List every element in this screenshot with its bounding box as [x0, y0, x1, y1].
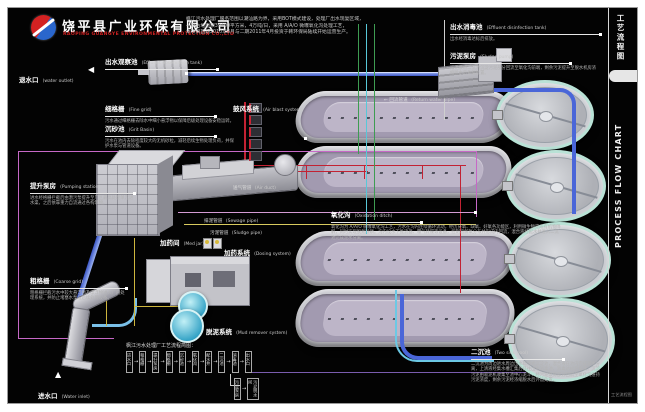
dewatering-machine-2 — [213, 271, 235, 287]
dosing-tank-icon-2 — [213, 238, 222, 249]
label-coarse-grid: 粗格栅 (Coarse grid) 粗格栅拦截污水中较大悬浮物及漂浮物进入厂内处… — [30, 277, 126, 302]
air-duct-name-en: (Air duct) — [255, 186, 276, 191]
sludge-thickener-2 — [170, 309, 204, 343]
diagram-canvas: 饶平县广业环保有限公司 RAOPING GUANGYE ENVIRONMENTA… — [7, 7, 638, 404]
grit-basin-desc: 污水在池内去除密度较大的无机砂粒，减轻后续生物处理负荷，并保护水泵与管道设备。 — [105, 139, 237, 150]
oxidation-ditch-desc: 氧化沟为 A/A/O 微曝氧化沟工艺，污水在沟内连续循环流动，经历厌氧、缺氧、好… — [331, 225, 561, 242]
riser-line-green-2 — [374, 24, 375, 220]
plant-description-line: 本项目首期2010年3月与二期2011年4月投资于韩环保局陆续开始运营生产。 — [186, 30, 461, 37]
label-pumping-station: 提升泵房 (Pumping station) 进水经格栅拦截后由潜污泵提升至厂区… — [30, 182, 134, 207]
clarifier-hub — [554, 256, 568, 267]
coarse-grid-name: 粗格栅 — [30, 277, 50, 285]
return-line-h — [18, 151, 476, 152]
observation-tank-name: 出水观察池 — [105, 58, 138, 66]
inlet-arrow-icon: ▲ — [55, 370, 61, 379]
mini-flow-step: 配水井 — [205, 351, 212, 373]
sidebar-footer: 工艺流程图 — [611, 392, 632, 398]
plant-description: 枫江污水处理厂服务范围以潮汕路为界，采用BOT模式建设，处理厂出水现复区域， 一… — [186, 17, 461, 37]
med-jar-name-en: (Med jar) — [184, 242, 204, 247]
disinfection-tank-name: 出水消毒池 — [450, 23, 483, 31]
dosing-system-name: 加药系统 — [224, 249, 250, 257]
secondary-tank-name-en: (Two sink pool) — [495, 351, 528, 356]
mini-flow-title: 枫江污水处理厂工艺流程简图： — [126, 342, 406, 349]
grit-basin-name: 沉砂池 — [105, 125, 125, 133]
label-water-outlet: 退水口 (water outlet) — [19, 67, 74, 86]
water-outlet-name-en: (water outlet) — [43, 79, 74, 84]
clarifier-hub — [556, 336, 570, 347]
effluent-pipe-loop — [454, 88, 576, 164]
clarifier-drive — [504, 334, 515, 344]
clarifier-drive — [504, 254, 515, 264]
mini-flow-arrow-icon: → — [134, 359, 138, 365]
oxidation-ditch-name: 氧化沟 — [331, 211, 351, 219]
dosing-tank-icon-1 — [203, 238, 212, 249]
blower-unit-4 — [249, 139, 262, 149]
junction-node — [304, 137, 307, 140]
mini-flow-arrow-icon: → — [174, 359, 178, 365]
sludge-pump-name-en: (Sludge pump) — [480, 55, 513, 60]
air-drop-3 — [422, 165, 423, 179]
sidebar-tab-shape — [609, 70, 637, 82]
inlet-elbow — [60, 296, 130, 376]
sludge-pump-desc: 污泥泵将二沉池沉淀污泥部分回流至氧化沟前端，剩余污泥提升至脱水机房浓缩脱水后外运… — [450, 66, 600, 77]
ditch-aerators — [328, 172, 479, 174]
mini-flow-step: 氧化沟 — [192, 351, 199, 373]
effluent-main-pipe — [186, 72, 444, 76]
return-line-v-right — [476, 151, 477, 217]
pumping-station-name-en: (Pumping station) — [60, 185, 100, 190]
water-inlet-name: 进水口 — [38, 392, 58, 400]
label-sludge-pipe: 污泥管道 (Sludge pipe) — [210, 219, 262, 238]
building-side — [158, 155, 173, 234]
company-logo — [31, 15, 56, 40]
fine-grid-name-en: (Fine grid) — [129, 108, 152, 113]
mini-flow-step: 提升泵房 — [152, 351, 159, 373]
return-pipe-name: 回流管道 — [389, 98, 407, 103]
page-frame: 饶平县广业环保有限公司 RAOPING GUANGYE ENVIRONMENTA… — [0, 0, 645, 412]
mini-flow-arrow-icon: → — [213, 359, 217, 365]
disinfection-tank-name-en: (Effluent disinfection tank) — [487, 26, 547, 31]
label-return-pipe: ← 回流管道 (Return water pipe) — [384, 86, 455, 105]
blower-unit-5 — [249, 151, 262, 161]
mini-flow-step: 污泥泵房 — [234, 378, 241, 400]
coarse-grid-name-en: (Coarse grid) — [54, 280, 83, 285]
return-pipe-name-en: (Return water pipe) — [411, 98, 455, 103]
label-air-duct: 送气管道 (Air duct) — [233, 174, 276, 193]
mini-flow-branch: 污泥泵房→污泥脱水间 — [234, 378, 259, 400]
label-dosing-system: 加药系统 (Dosing system) — [224, 240, 291, 259]
return-pipe-arrow: ← — [384, 98, 388, 103]
sidebar-title-cn: 工艺流程图 — [615, 14, 626, 62]
label-grit-basin: 沉砂池 (Grit Basin) 污水在池内去除密度较大的无机砂粒，减轻后续生物… — [105, 125, 237, 150]
mini-flow-steps: 进水口→粗格栅→提升泵房→细格栅→沉砂池→氧化沟→配水井→二沉池→消毒池→出水口 — [126, 351, 406, 373]
label-med-jar: 加药间 (Med jar) — [160, 230, 204, 249]
sidebar-title-en: PROCESS FLOW CHART — [614, 88, 630, 248]
ditch-aerators — [328, 259, 482, 261]
secondary-tank-desc: 二沉池为周边进水周边出水辐流式沉淀池，混合液在池内完成泥水分离，上清液经集水槽汇… — [471, 362, 601, 384]
mud-remover-name: 脱泥系统 — [206, 328, 232, 336]
water-outlet-name: 退水口 — [19, 76, 39, 84]
outlet-arrow-icon: ◀ — [88, 65, 94, 74]
blower-unit-3 — [249, 127, 262, 137]
label-fine-grid: 细格栅 (Fine grid) 污水通过细格栅去除水中细小悬浮物以保障后级处理设… — [105, 105, 237, 124]
blower-unit-2 — [249, 115, 262, 125]
mini-flow-arrow-icon: → — [147, 359, 151, 365]
disinfection-tank-desc: 出水经消毒达标后排放。 — [450, 37, 600, 43]
label-observation-tank: 出水观察池 (Effluent observation tank) — [105, 58, 217, 70]
mini-flow-step: 二沉池 — [218, 351, 225, 373]
mini-flow-step: 进水口 — [126, 351, 133, 373]
riser-line-cyan — [366, 24, 367, 234]
clarifier-drive — [502, 181, 513, 191]
dewatering-machine-1 — [185, 273, 201, 287]
clarifier-hub — [550, 182, 564, 193]
air-blast-name-en: (Air blast system) — [263, 108, 303, 113]
mini-flow-step: 出水口 — [245, 351, 252, 373]
air-drop-2 — [364, 165, 365, 179]
coarse-grid-desc: 粗格栅拦截污水中较大悬浮物及漂浮物进入厂内处理系统，并防止堵塞水泵与后续处理设备… — [30, 291, 126, 302]
mini-flow-arrow-icon: → — [200, 359, 204, 365]
riser-line-green-1 — [358, 24, 359, 154]
mini-flow-step: 粗格栅 — [139, 351, 146, 373]
dosing-system-name-en: (Dosing system) — [254, 252, 291, 257]
med-jar-name: 加药间 — [160, 239, 180, 247]
effluent-pipe-vertical — [572, 158, 576, 214]
secondary-tank-name: 二沉池 — [471, 348, 491, 356]
sidebar-divider — [608, 8, 609, 403]
dosing-room-shape — [146, 259, 171, 303]
mud-remover-name-en: (Mud remover system) — [236, 331, 287, 336]
grit-basin-cyclone — [274, 154, 296, 176]
label-disinfection-tank: 出水消毒池 (Effluent disinfection tank) 出水经消毒… — [450, 23, 600, 42]
sludge-pipe-name: 污泥管道 — [210, 231, 228, 236]
sludge-pump-name: 污泥泵房 — [450, 52, 476, 60]
plant-description-line: 枫江污水处理厂服务范围以潮汕路为界，采用BOT模式建设，处理厂出水现复区域， — [186, 17, 461, 24]
fine-grid-desc: 污水通过细格栅去除水中细小悬浮物以保障后级处理设备安稳运转。 — [105, 119, 237, 125]
label-water-inlet: 进水口 (Water inlet) — [38, 383, 90, 402]
water-inlet-name-en: (Water inlet) — [62, 395, 90, 400]
oxidation-ditch-name-en: (Oxidation ditch) — [355, 214, 393, 219]
junction-node — [185, 72, 188, 75]
air-duct-name: 送气管道 — [233, 186, 251, 191]
label-air-blast: 鼓风系统 (Air blast system) — [233, 96, 303, 115]
label-sludge-pump: 污泥泵房 (Sludge pump) 污泥泵将二沉池沉淀污泥部分回流至氧化沟前端… — [450, 52, 600, 77]
grit-basin-name-en: (Grit Basin) — [129, 128, 155, 133]
label-secondary-tank: 二沉池 (Two sink pool) 二沉池为周边进水周边出水辐流式沉淀池，混… — [471, 348, 601, 384]
mini-flow-chart: 枫江污水处理厂工艺流程简图： 进水口→粗格栅→提升泵房→细格栅→沉砂池→氧化沟→… — [126, 342, 406, 402]
fine-grid-name: 细格栅 — [105, 105, 125, 113]
observation-tank-name-en: (Effluent observation tank) — [142, 61, 202, 66]
mini-flow-step: 沉砂池 — [179, 351, 186, 373]
pumping-station-desc: 进水经格栅拦截后由潜污泵提升至厂区最高处理单元进水渠，之后依靠重力自流通过各构筑… — [30, 196, 134, 207]
mini-flow-arrow-icon: → — [240, 359, 244, 365]
mini-flow-step: 消毒池 — [232, 351, 239, 373]
elbow-flange — [62, 358, 93, 371]
sludge-pipe-name-en: (Sludge pipe) — [232, 231, 262, 236]
sludge-line-h — [134, 306, 178, 307]
mini-flow-step: 细格栅 — [166, 351, 173, 373]
sludge-line-v — [134, 238, 135, 326]
mini-flow-arrow-icon: → — [160, 359, 164, 365]
mini-flow-arrow-icon: → — [242, 386, 246, 392]
mini-flow-step: 污泥脱水间 — [247, 378, 259, 400]
mini-flow-arrow-icon: → — [187, 359, 191, 365]
air-blast-name: 鼓风系统 — [233, 105, 259, 113]
label-mud-remover: 脱泥系统 (Mud remover system) — [206, 319, 287, 338]
pumping-station-name: 提升泵房 — [30, 182, 56, 190]
air-drop-1 — [306, 165, 307, 179]
grit-basin-hopper — [200, 156, 220, 169]
label-oxidation-ditch: 氧化沟 (Oxidation ditch) 氧化沟为 A/A/O 微曝氧化沟工艺… — [331, 211, 561, 241]
mini-flow-arrow-icon: → — [226, 359, 230, 365]
return-line-v-left — [18, 151, 19, 339]
